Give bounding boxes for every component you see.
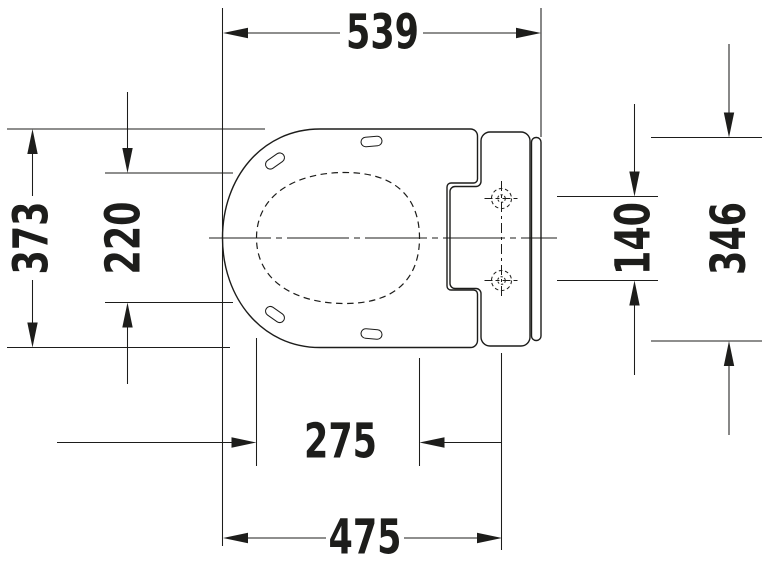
arrow-down-icon [724, 113, 734, 138]
drawing-canvas: 539 373 220 140 346 [0, 0, 763, 567]
arrow-right-icon [516, 28, 541, 38]
extension-lines [7, 8, 762, 550]
arrow-up-icon [122, 303, 132, 328]
dim-label-bowl-length: 275 [304, 414, 377, 470]
dim-label-bowl-width: 220 [96, 202, 152, 275]
dimension-140: 140 [606, 104, 662, 375]
arrow-right-icon [232, 437, 257, 447]
dimension-220: 220 [96, 92, 152, 384]
arrow-down-icon [122, 148, 132, 173]
arrow-right-icon [477, 533, 502, 543]
arrow-down-icon [629, 172, 639, 197]
dimension-373: 373 [4, 129, 60, 348]
rear-plate-outline [532, 138, 542, 341]
seat-slot-bottom-left [264, 305, 287, 325]
arrow-up-icon [27, 129, 37, 154]
attachment-box-outline [450, 132, 530, 346]
dimension-539: 539 [223, 5, 541, 61]
dimension-346: 346 [701, 44, 757, 435]
arrow-left-icon [223, 28, 248, 38]
arrow-up-icon [724, 341, 734, 366]
seat-slot-bottom-mid [361, 328, 383, 339]
dimension-275: 275 [57, 414, 501, 470]
arrow-up-icon [629, 281, 639, 306]
arrow-down-icon [27, 323, 37, 348]
seat-slot-top-mid [361, 136, 383, 147]
dim-label-hole-spacing: 140 [606, 202, 662, 275]
dimension-475: 475 [223, 510, 502, 566]
dim-label-front-to-axis: 475 [329, 510, 402, 566]
arrow-left-icon [223, 533, 248, 543]
arrow-left-icon [420, 437, 445, 447]
dim-label-overall-length: 539 [346, 5, 419, 61]
dim-label-overall-width: 373 [4, 202, 60, 275]
seat-slot-top-left [264, 151, 287, 171]
dim-label-plate-height: 346 [701, 202, 757, 275]
technical-drawing: 539 373 220 140 346 [0, 0, 763, 567]
